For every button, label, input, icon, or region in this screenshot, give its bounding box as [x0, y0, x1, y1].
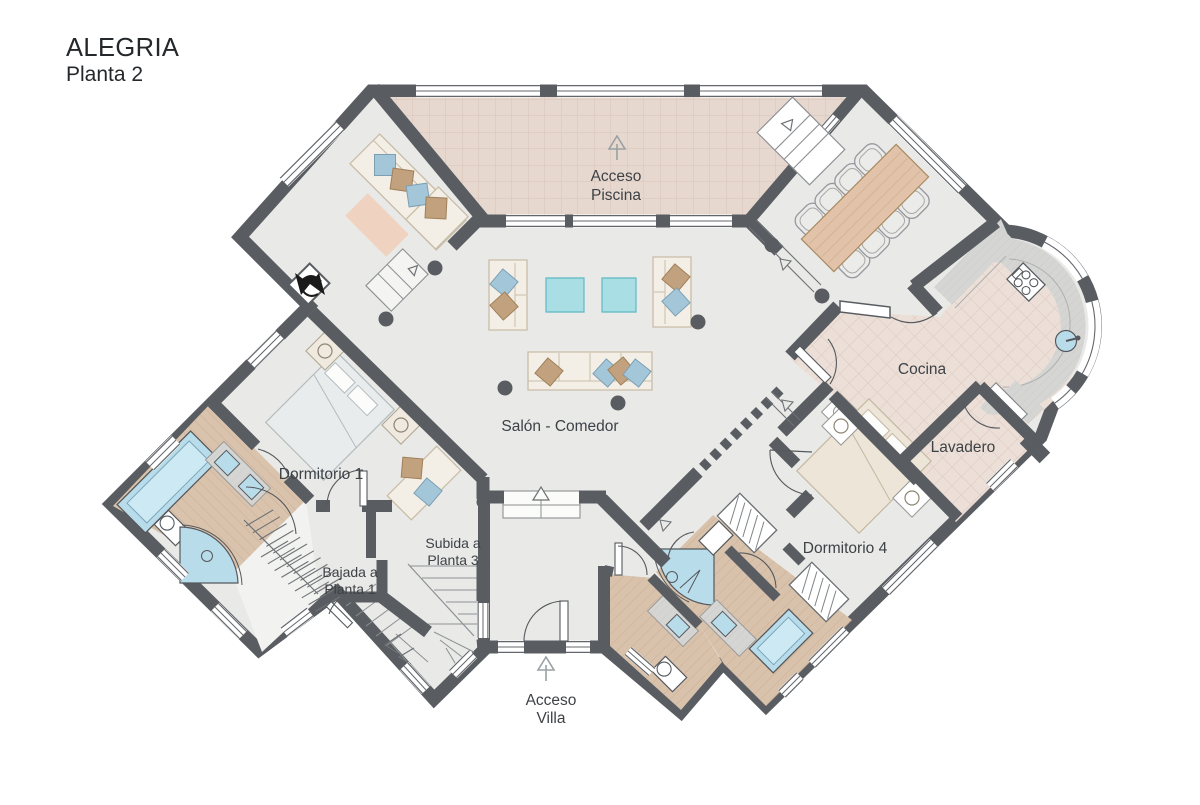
svg-text:Planta 1: Planta 1	[324, 581, 376, 597]
svg-text:Acceso: Acceso	[526, 692, 577, 709]
svg-text:Piscina: Piscina	[591, 187, 641, 204]
svg-text:Villa: Villa	[536, 710, 565, 727]
svg-text:ALEGRIA: ALEGRIA	[66, 34, 179, 62]
svg-text:Acceso: Acceso	[591, 168, 642, 185]
svg-text:Dormitorio 4: Dormitorio 4	[803, 540, 888, 557]
svg-text:Planta 2: Planta 2	[66, 63, 143, 86]
svg-text:Cocina: Cocina	[898, 361, 947, 378]
svg-text:Salón - Comedor: Salón - Comedor	[501, 418, 618, 435]
svg-text:Bajada a: Bajada a	[322, 564, 377, 580]
svg-text:Planta 3: Planta 3	[427, 552, 479, 568]
svg-text:Subida a: Subida a	[425, 535, 480, 551]
svg-text:Dormitorio 1: Dormitorio 1	[279, 466, 363, 483]
svg-text:Lavadero: Lavadero	[931, 439, 996, 456]
